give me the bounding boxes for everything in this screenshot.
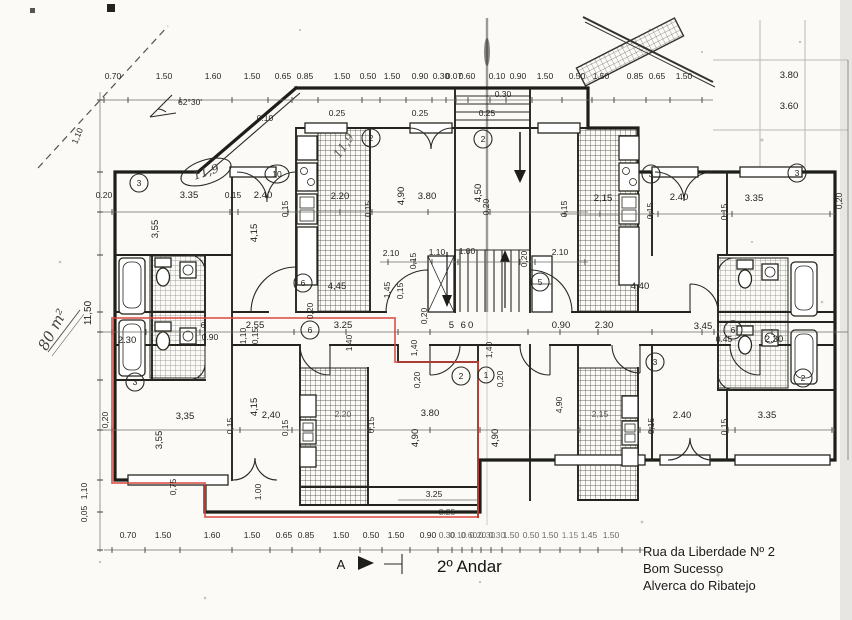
dim-label: 0.85 (297, 71, 314, 81)
dim-label: 0.90 (510, 71, 527, 81)
dim-label: 0,15 (225, 417, 235, 434)
dim-label: 4,15 (249, 398, 260, 417)
room-number: 2 (481, 134, 486, 144)
dim-label: 1,10 (79, 482, 89, 499)
address-line: Bom Sucesso (643, 561, 723, 576)
room-number: 2 (459, 371, 464, 381)
dim-label: 6 (201, 320, 206, 330)
dim-label: 0.65 (649, 71, 666, 81)
dim-label: 0.25 (412, 108, 429, 118)
dim-label: 4,15 (249, 224, 260, 243)
dim-label: 0.90 (202, 332, 219, 342)
dim-label: 0.10 (257, 113, 274, 123)
dim-label: 0,20 (412, 371, 422, 388)
dim-label: 1.60 (204, 530, 221, 540)
dim-label: 2,40 (262, 410, 281, 421)
room-number: 2 (369, 133, 374, 143)
dim-label: 1.15 (562, 530, 579, 540)
dim-label: 0,15 (363, 200, 373, 217)
dim-label: 2.20 (335, 409, 352, 419)
dim-label: 4,45 (328, 281, 347, 292)
dim-label: 0,15 (280, 419, 290, 436)
dim-label: 0.25 (479, 108, 496, 118)
room-number: 6 (731, 325, 736, 335)
address-line: Alverca do Ribatejo (643, 578, 756, 593)
dim-label: 4,50 (473, 184, 484, 203)
dim-label: 0.90 (420, 530, 437, 540)
dim-label: 0.85 (627, 71, 644, 81)
dim-label: 2,15 (594, 193, 613, 204)
dim-label: 4.40 (631, 281, 650, 292)
dim-label: 0,20 (834, 192, 844, 209)
dim-label: 2,15 (592, 409, 609, 419)
dim-label: 3.80 (418, 191, 437, 202)
dim-label: 0.50 (523, 530, 540, 540)
dim-label: 1.50 (333, 530, 350, 540)
floor-plan-canvas: 0.70 1.50 1.60 1.50 0.65 0.85 1.50 0.50 … (0, 0, 852, 620)
dim-label: 0,15 (719, 203, 729, 220)
dim-label: 1,10 (238, 327, 248, 344)
room-number: 3 (133, 377, 138, 387)
dim-label: 3.25 (426, 489, 443, 499)
dim-label: 3,35 (176, 411, 195, 422)
dim-label: 0.60 (459, 71, 476, 81)
dim-label: 4,90 (490, 429, 501, 448)
dim-label: 3.35 (758, 410, 777, 421)
room-number: 3 (649, 169, 654, 179)
dim-label: 0.90 (552, 320, 571, 331)
room-number: 2 (801, 373, 806, 383)
dim-label: 0.50 (363, 530, 380, 540)
dim-label: 3.80 (780, 70, 799, 81)
dim-label: 2.10 (383, 248, 400, 258)
dim-label: 1.50 (676, 71, 693, 81)
room-number: 5 (538, 277, 543, 287)
dim-label: 2.40 (673, 410, 692, 421)
dim-label: 1,40 (344, 334, 354, 351)
dim-label: 2.40 (670, 192, 689, 203)
scanned-floor-plan: 0.70 1.50 1.60 1.50 0.65 0.85 1.50 0.50 … (0, 0, 852, 620)
dim-label: 0,15 (366, 416, 376, 433)
dim-label: 1.45 (581, 530, 598, 540)
dim-label: 2.30 (595, 320, 614, 331)
dim-label: 0.90 (412, 71, 429, 81)
address-line: Rua da Liberdade Nº 2 (643, 544, 775, 559)
dim-label: 1.00 (253, 483, 263, 500)
dim-label: 3.25 (334, 320, 353, 331)
dim-label: 1,40 (484, 341, 494, 358)
room-number: 3 (795, 168, 800, 178)
dim-label: 3.80 (421, 408, 440, 419)
dim-label: 2.30 (118, 335, 137, 346)
dim-label: 0.65 (276, 530, 293, 540)
dim-label: 0.50 (360, 71, 377, 81)
dim-label: 1.50 (244, 71, 261, 81)
dim-label: 1.50 (537, 71, 554, 81)
dim-label: 1.50 (542, 530, 559, 540)
dim-label: 0.15 (225, 190, 242, 200)
dim-label: 0.10 (489, 71, 506, 81)
dim-label: 1.50 (384, 71, 401, 81)
angle-label: 62°30' (178, 97, 202, 107)
dim-label: 0.25 (329, 108, 346, 118)
dim-label: 0,05 (79, 505, 89, 522)
dim-label: 4,90 (410, 429, 421, 448)
dim-label: 3,55 (154, 431, 165, 450)
dim-label: 0.65 (275, 71, 292, 81)
dim-label: 2.20 (331, 191, 350, 202)
dim-label: 0.50 (569, 71, 586, 81)
dim-label: 1.50 (503, 530, 520, 540)
dim-label: 0,20 (495, 370, 505, 387)
dim-label: 0,20 (100, 411, 110, 428)
dim-label: 1,45 (382, 281, 392, 298)
dim-label: 3.35 (745, 193, 764, 204)
dim-label: 3,55 (150, 220, 161, 239)
dim-label: 0,15 (645, 202, 655, 219)
dim-label: 2.10 (552, 247, 569, 257)
dim-label: 0,15 (280, 200, 290, 217)
dim-label: 0,75 (168, 478, 178, 495)
room-number: 3 (653, 357, 658, 367)
dim-label: 1.50 (593, 71, 610, 81)
room-number: 1 (484, 370, 489, 380)
dim-label: 3.35 (180, 190, 199, 201)
dim-label: 0,15 (646, 417, 656, 434)
page-title: 2º Andar (437, 557, 502, 576)
room-number: 6 (301, 278, 306, 288)
dim-label: 0,15 (559, 200, 569, 217)
dim-label: 0,15 (719, 418, 729, 435)
dim-label: 4,90 (396, 187, 407, 206)
dim-label: 1.50 (156, 71, 173, 81)
dim-label: 3.60 (780, 101, 799, 112)
dim-label: 1.50 (334, 71, 351, 81)
dim-label: 1,40 (409, 339, 419, 356)
dim-label: 4,90 (554, 396, 564, 413)
overall-dim: 11,50 (83, 300, 94, 325)
dim-label: 0.70 (105, 71, 122, 81)
dim-label: 1.50 (603, 530, 620, 540)
dim-label: 2.40 (254, 190, 273, 201)
dim-label: 2.30 (765, 334, 784, 345)
dim-label: 0,20 (519, 250, 529, 267)
room-number: 10 (272, 169, 282, 179)
dim-label: 0.30 (495, 89, 512, 99)
room-number: 3 (137, 178, 142, 188)
dim-label: 0,15 (250, 327, 260, 344)
dim-label: 0.20 (96, 190, 113, 200)
dim-label: 1.50 (244, 530, 261, 540)
dim-label: 0,20 (419, 307, 429, 324)
dim-label: 5 60 (449, 320, 476, 331)
dim-label: 3.25 (439, 507, 456, 517)
room-number: 6 (308, 325, 313, 335)
dim-label: 0,20 (305, 302, 315, 319)
dim-label: 0.85 (298, 530, 315, 540)
dim-label: 0,15 (395, 282, 405, 299)
dim-label: 1.50 (388, 530, 405, 540)
dim-label: 1.00 (459, 246, 476, 256)
dim-label: 1.50 (155, 530, 172, 540)
dim-label: 3.45 (694, 321, 713, 332)
section-marker: A (337, 557, 346, 572)
dim-label: 1.10 (429, 247, 446, 257)
dim-label: 1.60 (205, 71, 222, 81)
dim-label: 0,15 (408, 252, 418, 269)
dim-label: 0.70 (120, 530, 137, 540)
